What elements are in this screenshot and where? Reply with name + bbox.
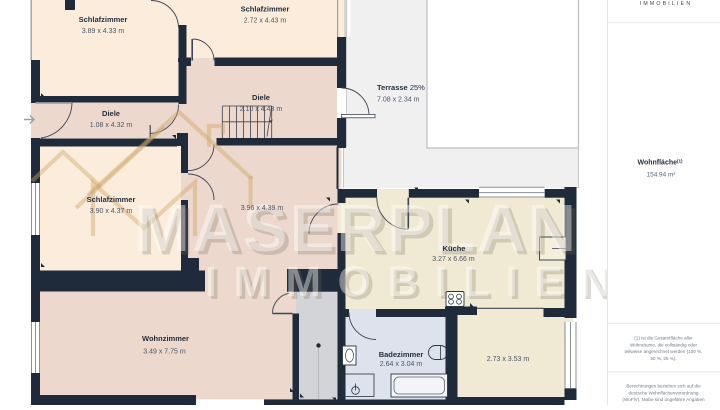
svg-text:Küche: Küche <box>443 244 466 253</box>
svg-text:7.08 x 2.34 m: 7.08 x 2.34 m <box>377 97 420 104</box>
svg-text:Wohnfläche(1): Wohnfläche(1) <box>637 159 683 167</box>
svg-text:3.49 x 7.75 m: 3.49 x 7.75 m <box>143 349 186 356</box>
svg-text:deutsche Wohnflächenverordnung: deutsche Wohnflächenverordnung <box>629 390 699 395</box>
svg-text:Wohnräume, die vollständig ode: Wohnräume, die vollständig oder <box>630 342 698 347</box>
svg-text:IMMOBILIEN: IMMOBILIEN <box>640 1 693 7</box>
svg-text:Schlafzimmer: Schlafzimmer <box>241 5 290 14</box>
svg-text:2.72 x 4.43 m: 2.72 x 4.43 m <box>244 18 287 25</box>
svg-text:Schlafzimmer: Schlafzimmer <box>79 15 128 24</box>
svg-text:2.64 x 3.04 m: 2.64 x 3.04 m <box>380 361 423 368</box>
svg-text:3.96 x 4.39 m: 3.96 x 4.39 m <box>241 205 284 212</box>
svg-text:154.94 m²: 154.94 m² <box>647 172 676 179</box>
svg-text:MASERPLAN: MASERPLAN <box>134 191 576 266</box>
svg-text:2.73 x 3.53 m: 2.73 x 3.53 m <box>487 356 530 363</box>
svg-text:(1) ist die Gesamtfläche aller: (1) ist die Gesamtfläche aller <box>634 336 693 341</box>
svg-text:Diele: Diele <box>252 93 270 102</box>
svg-text:3.27 x 6.66 m: 3.27 x 6.66 m <box>432 256 475 263</box>
svg-text:3.89 x 4.33 m: 3.89 x 4.33 m <box>82 28 125 35</box>
svg-text:1.08 x 4.32 m: 1.08 x 4.32 m <box>90 122 133 129</box>
svg-text:(WoFlV). Maße sind ungefähre A: (WoFlV). Maße sind ungefähre Angaben <box>622 397 705 402</box>
svg-text:Diele: Diele <box>102 109 120 118</box>
svg-text:Berechnungen beziehen sich auf: Berechnungen beziehen sich auf die <box>626 384 701 389</box>
svg-text:Badezimmer: Badezimmer <box>379 350 424 359</box>
svg-text:IMMOBILIEN: IMMOBILIEN <box>205 259 610 306</box>
svg-text:Terrasse 25%: Terrasse 25% <box>377 83 425 92</box>
svg-text:Wohnzimmer: Wohnzimmer <box>142 334 189 343</box>
svg-text:2.10 x 4.43 m: 2.10 x 4.43 m <box>240 106 283 113</box>
svg-text:3.90 x 4.37 m: 3.90 x 4.37 m <box>90 208 133 215</box>
svg-text:teilweise angerechnet werden (: teilweise angerechnet werden (100 %, <box>625 349 703 354</box>
svg-text:Schlafzimmer: Schlafzimmer <box>87 195 136 204</box>
svg-text:50 %, 25 %).: 50 %, 25 %). <box>650 356 676 361</box>
